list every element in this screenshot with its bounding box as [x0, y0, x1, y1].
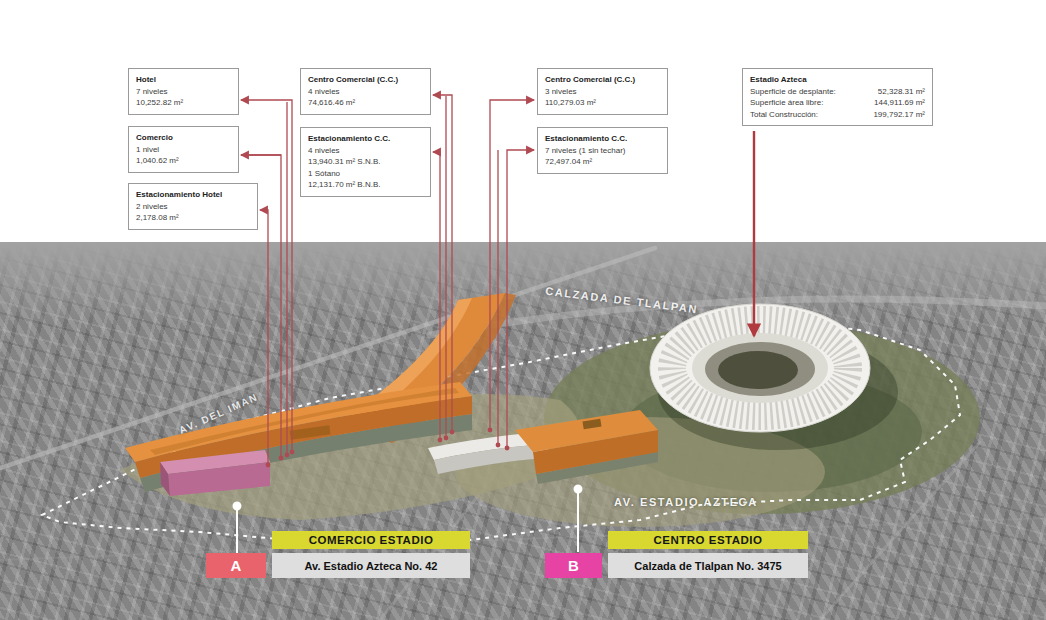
callout-line: 72,497.04 m²: [545, 156, 660, 168]
site-diagram: CALZADA DE TLALPAN AV. DEL IMAN AV. ESTA…: [0, 0, 1046, 620]
site-address-a: Av. Estadio Azteca No. 42: [272, 553, 470, 578]
callout-title: Estacionamiento Hotel: [136, 189, 250, 201]
callout-line: 10,252.82 m²: [136, 97, 231, 109]
callout-line: 13,940.31 m² S.N.B.: [308, 156, 423, 168]
estadio-row: Superficie área libre: 144,911.69 m²: [750, 97, 925, 109]
zone-label-centro-estadio: CENTRO ESTADIO: [608, 531, 808, 549]
callout-line: 3 niveles: [545, 86, 660, 98]
estadio-row-label: Superficie de desplante:: [750, 86, 836, 98]
callout-line: 1 nivel: [136, 144, 231, 156]
callout-comercio: Comercio 1 nivel 1,040.62 m²: [128, 126, 239, 173]
callout-title: Estacionamiento C.C.: [545, 133, 660, 145]
callout-title: Centro Comercial (C.C.): [308, 74, 423, 86]
callout-line: 4 niveles: [308, 86, 423, 98]
callout-line: 110,279.03 m²: [545, 97, 660, 109]
callout-hotel: Hotel 7 niveles 10,252.82 m²: [128, 68, 239, 115]
aerial-photo: [0, 242, 1046, 620]
callout-title: Centro Comercial (C.C.): [545, 74, 660, 86]
callout-estadio-azteca: Estadio Azteca Superficie de desplante: …: [742, 68, 933, 126]
callout-centro-comercial-2: Centro Comercial (C.C.) 3 niveles 110,27…: [537, 68, 668, 115]
callout-line: 7 niveles: [136, 86, 231, 98]
callout-line: 4 niveles: [308, 145, 423, 157]
site-marker-b: B: [545, 553, 602, 578]
estadio-row-value: 52,328.31 m²: [878, 86, 925, 98]
estadio-row-label: Total Construcción:: [750, 109, 818, 121]
callout-title: Comercio: [136, 132, 231, 144]
estadio-row-value: 199,792.17 m²: [873, 109, 925, 121]
callout-centro-comercial-1: Centro Comercial (C.C.) 4 niveles 74,616…: [300, 68, 431, 115]
callout-line: 2,178.08 m²: [136, 212, 250, 224]
callout-estacionamiento-cc-2: Estacionamiento C.C. 7 niveles (1 sin te…: [537, 127, 668, 174]
callout-line: 1 Sótano: [308, 168, 423, 180]
estadio-row: Total Construcción: 199,792.17 m²: [750, 109, 925, 121]
callout-estacionamiento-cc-1: Estacionamiento C.C. 4 niveles 13,940.31…: [300, 127, 431, 197]
site-address-b: Calzada de Tlalpan No. 3475: [608, 553, 808, 578]
zone-label-comercio-estadio: COMERCIO ESTADIO: [272, 531, 470, 549]
callout-line: 1,040.62 m²: [136, 155, 231, 167]
callout-title: Estadio Azteca: [750, 74, 925, 86]
estadio-row: Superficie de desplante: 52,328.31 m²: [750, 86, 925, 98]
estadio-row-value: 144,911.69 m²: [874, 97, 925, 109]
estadio-row-label: Superficie área libre:: [750, 97, 823, 109]
callout-estacionamiento-hotel: Estacionamiento Hotel 2 niveles 2,178.08…: [128, 183, 258, 230]
callout-title: Estacionamiento C.C.: [308, 133, 423, 145]
street-label-av-estadio-azteca: AV. ESTADIO AZTECA: [614, 496, 758, 508]
callout-line: 12,131.70 m² B.N.B.: [308, 179, 423, 191]
callout-line: 7 niveles (1 sin techar): [545, 145, 660, 157]
callout-title: Hotel: [136, 74, 231, 86]
callout-line: 2 niveles: [136, 201, 250, 213]
site-marker-a: A: [206, 553, 266, 578]
callout-line: 74,616.46 m²: [308, 97, 423, 109]
